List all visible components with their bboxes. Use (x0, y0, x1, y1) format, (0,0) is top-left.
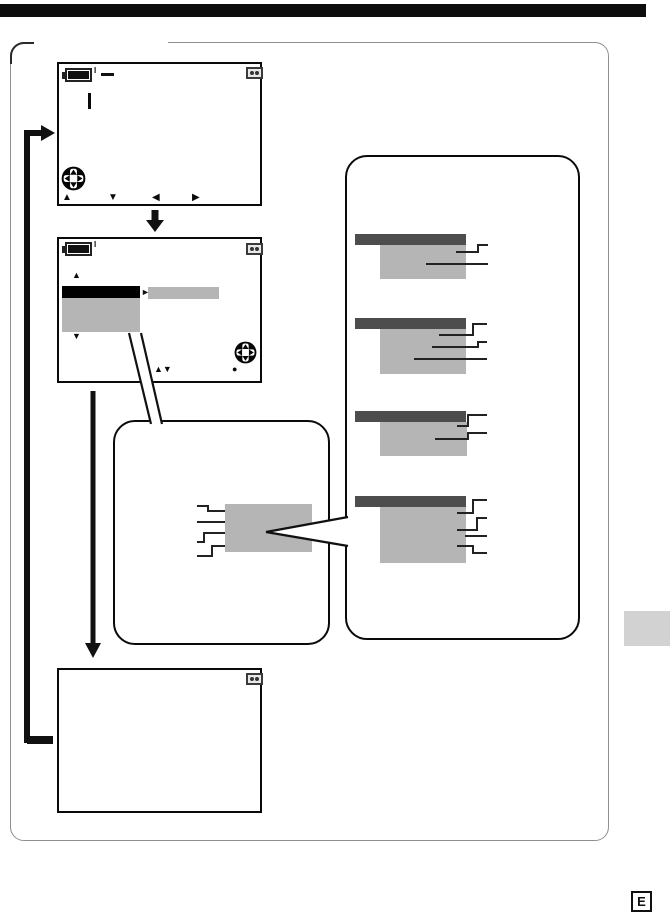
menu-body-block (62, 298, 140, 332)
option-group-1-header (355, 234, 466, 245)
tape-hub-left (250, 71, 254, 75)
dpad-icon (234, 341, 257, 364)
option-group-2-body (380, 329, 466, 374)
lcd-screen-2: I ▲ ► ▼ ▲▼ ● (57, 237, 262, 383)
tape-hub-right (255, 677, 259, 681)
edition-badge: E (631, 891, 652, 912)
battery-level-mark: I (94, 241, 96, 249)
option-group-3-body (380, 422, 467, 456)
nav-left-hint: ◀ (152, 193, 160, 203)
title-bar (0, 4, 646, 17)
edition-badge-label: E (637, 894, 646, 909)
frame-title-gap (26, 40, 168, 46)
options-panel (345, 155, 580, 640)
tape-hub-right (255, 247, 259, 251)
battery-level-mark: I (94, 67, 96, 75)
tape-hub-left (250, 247, 254, 251)
execute-hint: ● (232, 365, 237, 374)
tape-icon (246, 67, 263, 79)
menu-scroll-down-icon: ▼ (72, 332, 81, 341)
lcd-screen-3 (57, 668, 262, 813)
menu-highlight-bar (62, 286, 140, 298)
option-group-3-header (355, 411, 466, 422)
nav-down-hint: ▼ (108, 193, 118, 203)
battery-icon: I (62, 67, 114, 83)
menu-option-bar (148, 287, 219, 299)
updown-hint: ▲▼ (154, 365, 172, 374)
nav-up-hint: ▲ (62, 193, 72, 203)
nav-right-hint: ▶ (192, 193, 200, 203)
frame-corner (10, 42, 34, 64)
option-group-2-header (355, 318, 466, 329)
page-section-tab (624, 611, 670, 646)
manual-page: I ▲ ▼ ◀ ▶ I ▲ (0, 0, 670, 920)
battery-icon: I (62, 241, 96, 257)
option-group-1-body (380, 245, 466, 279)
option-group-4-body (380, 507, 466, 563)
dpad-icon (61, 166, 86, 191)
callout-item-box (225, 504, 312, 552)
tape-icon (246, 243, 263, 255)
remaining-time-dash (101, 73, 114, 76)
tape-hub-right (255, 71, 259, 75)
menu-scroll-up-icon: ▲ (72, 271, 81, 280)
text-cursor-mark (88, 93, 91, 109)
lcd-screen-1: I ▲ ▼ ◀ ▶ (57, 62, 262, 206)
battery-body (65, 242, 92, 256)
battery-body (65, 68, 92, 82)
tape-icon (246, 673, 263, 685)
option-group-4-header (355, 496, 466, 507)
tape-hub-left (250, 677, 254, 681)
